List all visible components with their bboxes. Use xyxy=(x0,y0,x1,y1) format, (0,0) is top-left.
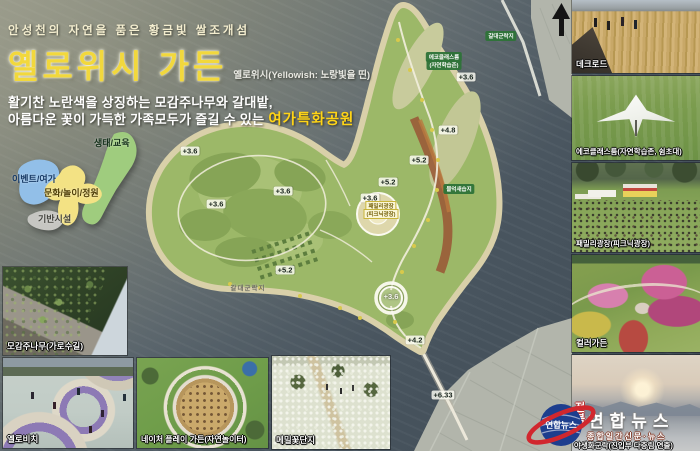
photo-buckwheat-field: 메밀꽃단지 xyxy=(272,356,390,449)
park-masterplan-poster: +3.6+4.8+5.2+5.2+3.6+3.6+3.6+3.6+5.2+3.6… xyxy=(0,0,700,451)
description-highlight: 여가특화공원 xyxy=(268,112,354,128)
concept-zoning-diagram: 생태/교육 이벤트/여가 문화/놀이/정원 기반시설 xyxy=(2,128,164,254)
photo-label: 컬러가든 xyxy=(576,337,607,349)
tagline: 안성천의 자연을 품은 황금빛 쌀조개섬 xyxy=(8,22,438,38)
photo-eco-classroom: 에코클래스룸(자연학습존, 쉼초대) xyxy=(572,76,700,160)
description-line2: 아름다운 꽃이 가득한 가족모두가 즐길 수 있는 여가특화공원 xyxy=(8,111,438,129)
title-subtitle: 옐로위시(Yellowish: 노랑빛을 띤) xyxy=(233,70,370,81)
photo-color-garden: 컬러가든 xyxy=(572,255,700,352)
central-plaza xyxy=(357,193,399,235)
photo-yellow-beach: 옐로비치 xyxy=(3,358,133,448)
legend-event-label: 이벤트/여가 xyxy=(12,172,56,185)
watermark-brand: 연합뉴스 xyxy=(588,407,675,432)
logo-text: 연합뉴스 xyxy=(545,420,576,430)
photo-label: 데크로드 xyxy=(576,58,607,70)
photo-label: 모감주나무(가로수길) xyxy=(7,340,83,352)
photo-label: 옐로비치 xyxy=(7,433,38,445)
photo-label: 패밀리광장(피크닉광장) xyxy=(576,238,650,249)
photo-label: 메밀꽃단지 xyxy=(276,434,315,446)
photo-family-plaza: 패밀리광장(피크닉광장) xyxy=(572,163,700,252)
photo-label: 에코클래스룸(자연학습존, 쉼초대) xyxy=(576,146,682,157)
legend-culture-label: 문화/놀이/정원 xyxy=(44,186,99,199)
legend-infra-label: 기반시설 xyxy=(38,212,71,225)
photo-nature-play-garden: 네이처 플레이 가든(자연놀이터) xyxy=(137,358,268,448)
legend-ecology-label: 생태/교육 xyxy=(94,136,130,149)
yonhap-news-logo-icon: 연합뉴스 xyxy=(524,399,598,451)
title-block: 안성천의 자연을 품은 황금빛 쌀조개섬 옐로위시 가든옐로위시(Yellowi… xyxy=(8,22,438,129)
photo-deck-road: 데크로드 xyxy=(572,0,700,73)
photo-label: 네이처 플레이 가든(자연놀이터) xyxy=(141,434,246,445)
photo-tree-street: 모감주나무(가로수길) xyxy=(3,267,127,355)
description-line1: 활기찬 노란색을 상징하는 모감주나무와 갈대밭, xyxy=(8,94,438,111)
page-title: 옐로위시 가든 xyxy=(8,48,227,85)
